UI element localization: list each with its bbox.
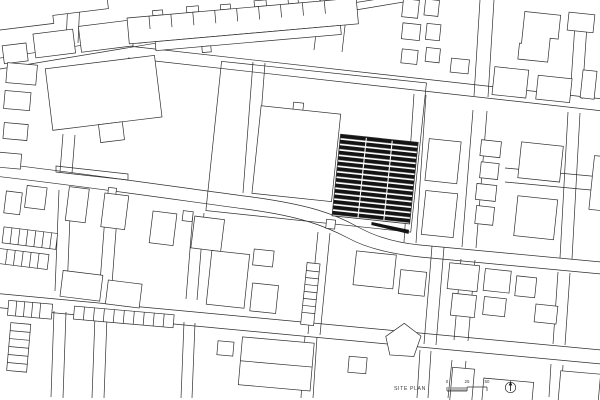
left-edge-buildings — [0, 63, 37, 170]
pentagon-building-outline — [384, 322, 422, 358]
large-building-outline — [45, 55, 162, 130]
rowhouse-column — [301, 263, 320, 326]
building-outline — [78, 20, 133, 52]
building-outline — [514, 196, 558, 240]
left-mid-buildings — [0, 175, 227, 317]
rowhouse-bump — [202, 46, 211, 53]
building-outline — [206, 251, 249, 309]
hatched-site-building — [332, 134, 418, 224]
building-outline — [450, 293, 476, 317]
building-outline — [250, 283, 279, 314]
building-outline — [3, 123, 28, 141]
small-structure-outline — [326, 219, 336, 229]
scale-label-25: 25 — [465, 379, 470, 384]
top-street-curb — [128, 58, 600, 112]
building-outline — [182, 211, 193, 222]
building-outline — [425, 139, 461, 184]
vertical-street — [560, 112, 580, 259]
building-outline — [0, 152, 22, 169]
building-outline — [534, 304, 558, 324]
building-outline — [589, 156, 600, 211]
building-outline — [421, 191, 457, 238]
building-outline — [450, 58, 469, 74]
site-plan-title: SITE PLAN — [394, 386, 426, 392]
building-outline — [149, 211, 177, 246]
lower-right-buildings — [346, 251, 561, 372]
building-outline — [515, 276, 537, 298]
building-outline — [105, 280, 142, 308]
building-outline — [101, 193, 129, 230]
building-outline — [480, 140, 502, 158]
building-outline — [492, 67, 529, 98]
building-outline — [557, 371, 600, 400]
existing-building-outline — [252, 106, 341, 202]
building-outline — [402, 0, 420, 18]
building-outline — [348, 356, 367, 374]
rowhouse-strip — [7, 300, 52, 319]
right-buildings — [472, 138, 600, 245]
building-outline — [401, 23, 421, 41]
lower-center-buildings — [205, 245, 321, 326]
building-outline — [98, 122, 124, 143]
large-building-outline — [518, 11, 561, 63]
building-outline — [217, 341, 234, 356]
building-outline — [191, 216, 225, 251]
building-outline — [449, 367, 474, 400]
building-outline — [60, 270, 103, 301]
vertical-street — [474, 0, 494, 97]
building-outline — [253, 249, 275, 267]
scale-label-50: 50 — [485, 379, 490, 384]
building-outline — [25, 185, 48, 209]
building-outline — [4, 90, 31, 110]
building-outline — [447, 263, 480, 292]
vertical-street — [424, 246, 444, 345]
street-median — [56, 166, 128, 180]
building-outline — [475, 206, 495, 226]
building-outline — [483, 268, 511, 293]
building-outline — [483, 297, 507, 317]
building-outline — [65, 187, 89, 223]
site-plan-drawing: SITE PLAN 0 25 50 — [0, 0, 600, 400]
building-outline — [567, 12, 595, 33]
entry-ramp — [371, 222, 410, 234]
vertical-street — [462, 110, 487, 248]
building-outline — [398, 270, 426, 297]
top-right-buildings — [395, 0, 600, 105]
vertical-street — [92, 316, 107, 398]
building-outline — [2, 43, 28, 64]
building-outline — [424, 0, 440, 16]
building-outline — [536, 75, 572, 102]
building-outline — [353, 251, 396, 289]
site-plan-sheet: SITE PLAN 0 25 50 — [0, 0, 600, 400]
mid-right-buildings — [419, 139, 463, 238]
vertical-street — [51, 311, 66, 398]
building-outline — [4, 191, 23, 215]
scale-label-0: 0 — [446, 379, 449, 384]
building-outline — [480, 162, 500, 180]
street-network — [0, 0, 600, 398]
vertical-street — [181, 322, 195, 398]
building-outline — [425, 47, 440, 62]
rowhouse-strip-top — [127, 0, 360, 59]
building-outline — [6, 63, 38, 86]
building-outline — [518, 142, 564, 182]
building-outline — [33, 29, 76, 58]
building-outline — [401, 49, 418, 65]
building-outline — [580, 70, 597, 99]
building-outline — [425, 23, 441, 40]
building-outline — [475, 183, 497, 201]
